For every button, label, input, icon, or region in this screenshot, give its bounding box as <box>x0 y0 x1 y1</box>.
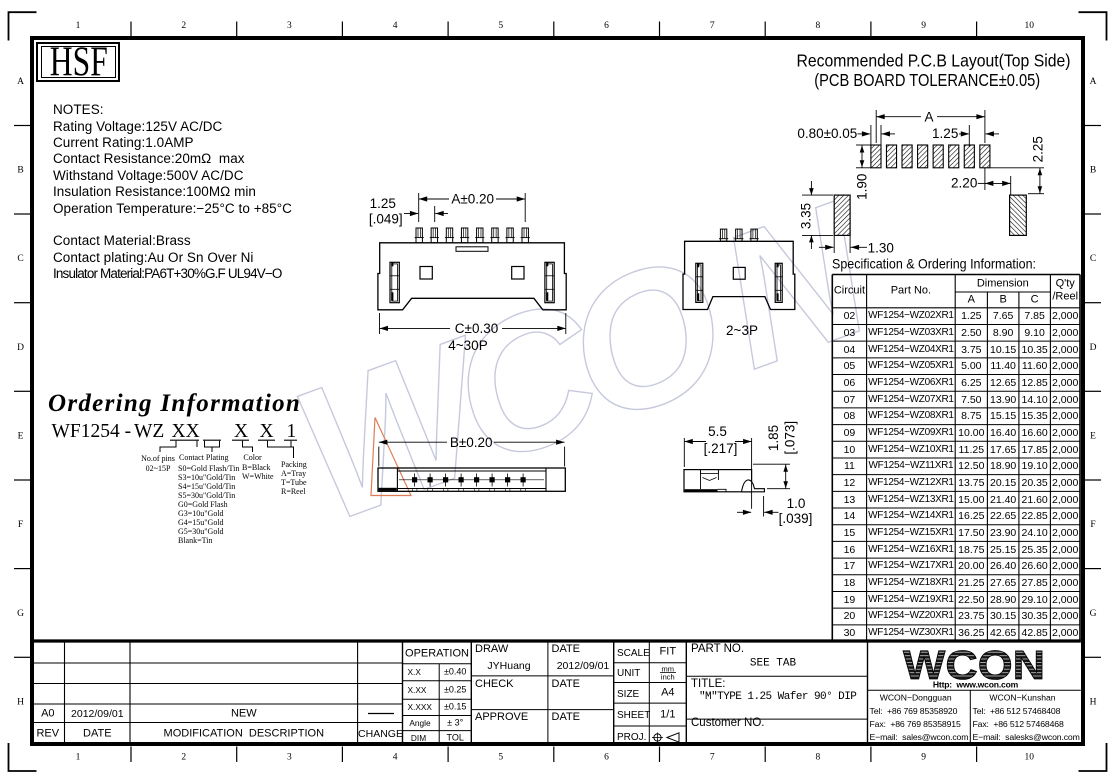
svg-text:9: 9 <box>921 21 926 31</box>
svg-text:B: B <box>17 166 23 176</box>
svg-text:4: 4 <box>393 753 398 763</box>
svg-text:4: 4 <box>393 21 398 31</box>
svg-text:A: A <box>1090 77 1097 87</box>
svg-text:1: 1 <box>76 21 81 31</box>
svg-text:F: F <box>18 520 23 530</box>
svg-text:10: 10 <box>1025 21 1035 31</box>
svg-text:3: 3 <box>287 753 292 763</box>
svg-text:E: E <box>18 432 24 442</box>
svg-text:6: 6 <box>604 753 609 763</box>
svg-text:E: E <box>1090 432 1096 442</box>
svg-text:H: H <box>17 697 24 707</box>
svg-text:7: 7 <box>710 21 715 31</box>
svg-text:1: 1 <box>76 753 81 763</box>
svg-text:8: 8 <box>816 21 821 31</box>
svg-text:6: 6 <box>604 21 609 31</box>
svg-text:7: 7 <box>710 753 715 763</box>
svg-text:2: 2 <box>181 21 186 31</box>
svg-text:C: C <box>17 254 23 264</box>
svg-text:9: 9 <box>921 753 926 763</box>
svg-text:8: 8 <box>816 753 821 763</box>
svg-text:D: D <box>1090 343 1097 353</box>
svg-text:5: 5 <box>498 753 503 763</box>
svg-text:2: 2 <box>181 753 186 763</box>
svg-text:G: G <box>17 609 24 619</box>
svg-text:G: G <box>1090 609 1097 619</box>
svg-text:A: A <box>17 77 24 87</box>
svg-text:B: B <box>1090 166 1096 176</box>
svg-text:F: F <box>1090 520 1095 530</box>
svg-text:5: 5 <box>498 21 503 31</box>
svg-text:H: H <box>1090 697 1097 707</box>
svg-text:10: 10 <box>1025 753 1035 763</box>
svg-text:D: D <box>17 343 24 353</box>
svg-text:3: 3 <box>287 21 292 31</box>
svg-text:C: C <box>1090 254 1096 264</box>
